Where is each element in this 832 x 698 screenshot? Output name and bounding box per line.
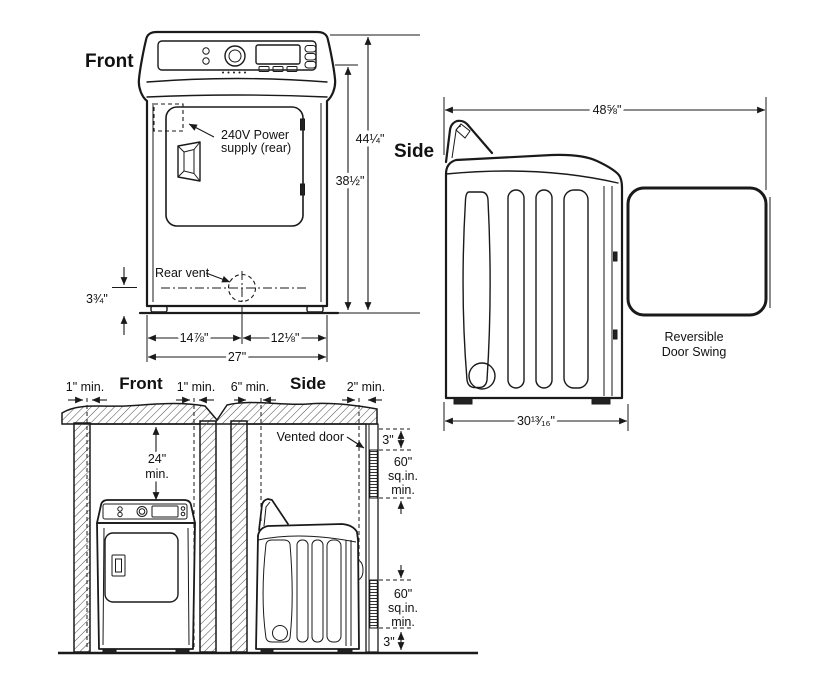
open-door: Reversible Door Swing: [628, 188, 770, 359]
side-panel-rib: [297, 540, 308, 642]
power-note-line2: supply (rear): [221, 141, 291, 155]
side-view-title: Side: [394, 141, 434, 162]
dryer-dimensions-diagram: Front: [0, 0, 832, 698]
hinge-icon: [301, 119, 305, 130]
power-supply-callout: 240V Power supply (rear): [154, 104, 291, 155]
ceiling-section: [62, 403, 377, 424]
side-vent-circle: [469, 363, 495, 389]
power-note-line1: 240V Power: [221, 128, 289, 142]
vent-grille-icon: [370, 450, 378, 498]
above-clearance-line2: min.: [145, 467, 169, 481]
gap-front-right-label: 1" min.: [177, 380, 215, 394]
clearance-view: 1" min. Front 1" min. 6" min. Side 2" mi…: [58, 374, 478, 653]
vent-bottom-area-line3: min.: [391, 615, 415, 629]
dim-body-height-label: 38½": [336, 174, 365, 188]
clearance-side-title: Side: [290, 374, 326, 393]
side-panel-rib: [564, 190, 588, 388]
dim-vent-to-floor: 3¾": [86, 267, 137, 335]
hinge-icon: [614, 330, 618, 339]
vent-bottom-area-line2: sq.in.: [388, 601, 418, 615]
side-panel-rib: [508, 190, 524, 388]
side-foot: [592, 398, 610, 404]
callout-arrow-icon: [206, 273, 230, 282]
panel-button-icon: [203, 58, 209, 64]
hinge-icon: [301, 184, 305, 195]
dim-depth-door-open: 48⅝": [444, 97, 766, 190]
front-view-title: Front: [85, 51, 134, 72]
vent-bottom-area-line1: 60": [394, 587, 412, 601]
door-handle-icon: [112, 555, 125, 576]
dial-knob-icon: [225, 46, 245, 66]
dim-vent-floor-label: 3¾": [86, 292, 108, 306]
alcove-side-dryer: [256, 499, 363, 653]
rear-vent-label: Rear vent: [155, 266, 210, 280]
gap-side-front-label: 2" min.: [347, 380, 385, 394]
vent-top-area-line2: sq.in.: [388, 469, 418, 483]
dim-width-total-label: 27": [228, 350, 246, 364]
gap-front-left-label: 1" min.: [66, 380, 104, 394]
vent-grille-icon: [370, 580, 378, 628]
side-panel-rib: [463, 192, 490, 388]
diagram-svg: Front: [0, 0, 832, 698]
dim-depth: 30¹³⁄₁₆": [444, 402, 628, 431]
door-handle-icon: [178, 142, 200, 181]
hinge-icon: [614, 252, 618, 261]
dim-width-left-label: 14⅞": [180, 331, 209, 345]
wall-section: [231, 421, 247, 652]
dim-depth-door-open-label: 48⅝": [593, 103, 622, 117]
dim-above-clearance: 24" min.: [145, 427, 169, 500]
vented-door-callout: Vented door: [277, 430, 364, 448]
side-console-bump: [446, 121, 492, 162]
dim-widths: 14⅞" 12⅛" 27": [147, 306, 327, 364]
front-view: Front: [85, 32, 420, 364]
above-clearance-line1: 24": [148, 452, 166, 466]
dim-depth-label: 30¹³⁄₁₆": [517, 414, 555, 428]
side-vent-circle: [273, 626, 288, 641]
side-foot: [454, 398, 472, 404]
vent-bottom-gap-label: 3": [383, 635, 394, 649]
side-panel-rib: [327, 540, 341, 642]
panel-button-icon: [203, 48, 209, 54]
rear-vent-callout: Rear vent: [155, 266, 306, 305]
door-swing-note-line2: Door Swing: [662, 345, 727, 359]
side-panel-rib: [263, 540, 292, 642]
clearance-front-title: Front: [119, 374, 163, 393]
side-view: Side 48⅝": [394, 97, 770, 431]
front-door: [166, 107, 305, 226]
power-supply-location-box: [154, 104, 183, 131]
wall-section: [200, 421, 216, 652]
wall-section: [74, 423, 90, 652]
callout-arrow-icon: [347, 437, 364, 448]
callout-arrow-icon: [189, 124, 214, 137]
gap-side-rear-label: 6" min.: [231, 380, 269, 394]
alcove-front-dryer: [97, 500, 195, 653]
structure: [58, 403, 478, 653]
side-panel-rib: [312, 540, 323, 642]
vented-door-label: Vented door: [277, 430, 344, 444]
dim-heights: 44¼" 38½": [330, 35, 420, 310]
dim-width-right-label: 12⅛": [271, 331, 300, 345]
display-screen: [256, 45, 300, 64]
door-swing-note-line1: Reversible: [664, 330, 723, 344]
dim-total-height-label: 44¼": [356, 132, 385, 146]
vent-top-gap-label: 3": [382, 433, 393, 447]
vent-top-area-line1: 60": [394, 455, 412, 469]
side-panel-rib: [536, 190, 552, 388]
front-control-panel: [158, 41, 316, 74]
vent-dimensions: 3" 60" sq.in. min. 60" sq.in. min. 3": [382, 431, 418, 650]
side-dryer-outline: [446, 121, 622, 404]
vent-top-area-line3: min.: [391, 483, 415, 497]
